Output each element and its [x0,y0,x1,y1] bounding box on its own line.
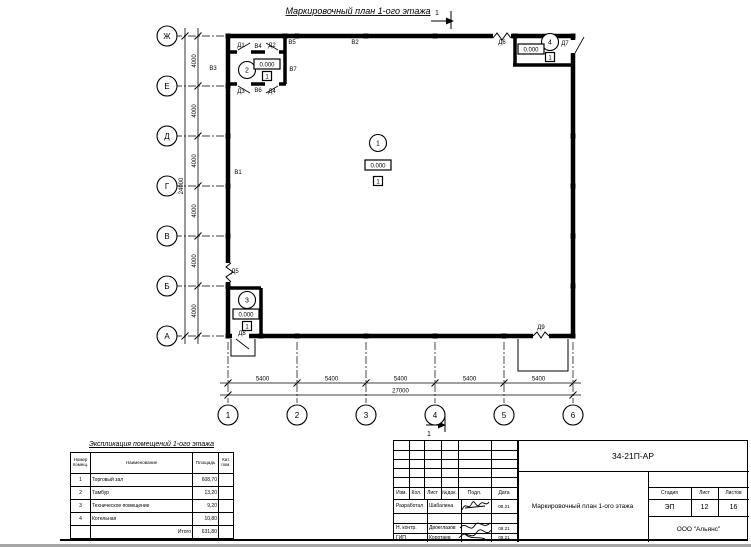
column-marker [259,334,264,339]
explication-title: Экспликация помещений 1-ого этажа [70,441,233,448]
room-name-cell: Котельная [91,513,193,526]
axis-label: Е [164,82,169,91]
table-row: 4Котельная10,80 [71,513,234,526]
table-row: 3Техническое помещение9,20 [71,500,234,513]
building-walls [228,36,573,336]
axis-label: Г [165,182,170,191]
wall-label-В3: В3 [209,66,217,72]
room-number: 4 [548,40,552,47]
axis-label: 1 [226,411,231,420]
total-value-cell: 631,80 [193,526,219,539]
section-mark-top-label: 1 [435,10,439,17]
elevation-value: 0.000 [259,62,275,68]
empty-cell [219,526,234,539]
wall-label-Д8: Д8 [238,331,246,337]
explication-block: Экспликация помещений 1-ого этажа Номер … [70,441,233,539]
dim-value: 5400 [532,377,546,383]
axis-label: 6 [571,411,576,420]
column-marker [571,34,576,39]
sheet-value: 12 [691,499,718,516]
signer-role: Н. контр. [395,523,427,533]
wall-label-Д1: Д1 [237,43,245,49]
dim-value: 4000 [192,54,198,68]
wall-label-Д4: Д4 [268,89,276,95]
axes-bottom: 123456 [218,342,583,425]
room-category-cell [219,474,234,487]
col-izm: Изм. [394,487,409,499]
room-area-cell: 10,80 [193,513,219,526]
column-marker [571,334,576,339]
axis-label: Ж [163,32,171,41]
dim-total: 27000 [392,389,409,395]
stage-value: ЭП [648,499,691,516]
total-label-cell: Итого [91,526,193,539]
col-name: Наименование [91,453,193,474]
room-number-cell: 2 [71,487,91,500]
column-marker [571,284,576,289]
stage-label: Стадия [648,487,691,499]
wall-label-В5: В5 [288,40,296,46]
total-row: Итого631,80 [71,526,234,539]
room-name-cell: Техническое помещение [91,500,193,513]
signer-name: Шабалина [428,499,461,513]
column-marker [364,34,369,39]
table-row: 2Тамбур13,20 [71,487,234,500]
col-kol: Кол. [409,487,424,499]
wall-label-Д5: Д5 [231,269,239,275]
wall-label-В7: В7 [289,67,297,73]
signer-role: Разработал [395,499,427,513]
title-block: Изм. Кол. Лист №док. Подл. Дата Разработ… [393,440,748,541]
sheet-frame-bottom [60,539,748,541]
table-row: 1Торговый зал608,70 [71,474,234,487]
column-marker [283,34,288,39]
dim-total: 24000 [179,177,185,194]
room-area-cell: 13,20 [193,487,219,500]
wall-label-В6: В6 [254,88,262,94]
wall-label-В4: В4 [254,44,262,50]
elevation-value: 0.000 [370,163,386,169]
dim-value: 5400 [463,377,477,383]
column-markers [226,34,576,339]
column-marker [226,34,231,39]
axis-label: 5 [502,411,507,420]
room-category-cell [219,500,234,513]
axis-label: 2 [295,411,300,420]
room-name-cell: Тамбур [91,487,193,500]
column-marker [226,84,231,89]
axis-label: 4 [433,411,438,420]
column-marker [502,334,507,339]
dimension-labels: 5400540054005400540027000400040004000400… [179,54,546,395]
dim-value: 4000 [192,204,198,218]
axis-label: Д [164,132,170,141]
document-number: 34-21П-АР [517,441,749,471]
empty-cell [71,526,91,539]
wall-label-В2: В2 [351,40,359,46]
elevation-value: 0.000 [238,312,254,318]
column-marker [295,34,300,39]
wall-label-Д3: Д3 [237,89,245,95]
room-category-cell [219,487,234,500]
col-list: Лист [424,487,441,499]
sheets-label: Листов [718,487,749,499]
room-marks: 10.000120.000130.000140.0001 [233,34,559,331]
dim-value: 4000 [192,154,198,168]
column-marker [295,334,300,339]
dim-value: 5400 [256,377,270,383]
section-mark-top: 1 [431,10,454,29]
room-number-cell: 1 [71,474,91,487]
column-marker [571,234,576,239]
room-category-cell [219,513,234,526]
col-category: Кат. пом. [219,453,234,474]
drawing-sheet: Маркировочный план 1-ого этажа 1 1 [0,0,751,547]
room-number: 1 [376,141,380,148]
axis-label: В [164,232,169,241]
room-number-cell: 4 [71,513,91,526]
wall-label-Д9: Д9 [537,325,545,331]
column-marker [226,184,231,189]
room-number-cell: 3 [71,500,91,513]
section-arrow-icon [446,18,454,25]
porches [231,339,568,371]
explication-table: Номер помещ. Наименование Площадь Кат. п… [70,452,234,539]
sheets-value: 16 [718,499,749,516]
wall-label-В1: В1 [234,170,242,176]
axis-label: 3 [364,411,369,420]
col-data: Дата [491,487,517,499]
drawing-name: Маркировочный план 1-ого этажа [517,471,648,542]
signature-icon [459,498,491,514]
elevation-value: 0.000 [523,47,539,53]
column-marker [571,184,576,189]
column-marker [571,134,576,139]
dim-value: 4000 [192,104,198,118]
column-marker [433,34,438,39]
axis-label: А [164,332,170,341]
sheet-label: Лист [691,487,718,499]
column-marker [226,234,231,239]
room-number: 3 [245,298,249,305]
plan-title: Маркировочный план 1-ого этажа [285,6,430,16]
col-doc: №док. [441,487,458,499]
dim-value: 4000 [192,254,198,268]
wall-label-Д7: Д7 [561,41,569,47]
column-marker [513,34,518,39]
wall-openings [223,31,584,349]
room-area-cell: 608,70 [193,474,219,487]
wall-label-Д2: Д2 [268,43,276,49]
explication-header-row: Номер помещ. Наименование Площадь Кат. п… [71,453,234,474]
column-marker [433,334,438,339]
dim-value: 5400 [325,377,339,383]
column-marker [226,334,231,339]
column-marker [226,284,231,289]
section-mark-bottom-label: 1 [427,431,431,438]
column-marker [364,334,369,339]
wall-label-Д6: Д6 [498,40,506,46]
col-number: Номер помещ. [71,453,91,474]
room-number: 2 [245,68,249,75]
sign-date: 08.21 [492,523,516,533]
sign-date: 08.21 [492,499,516,513]
dim-value: 4000 [192,304,198,318]
dim-value: 5400 [394,377,408,383]
axes-left: ЖЕДГВБА [157,26,224,346]
room-name-cell: Торговый зал [91,474,193,487]
axis-label: Б [164,282,169,291]
room-area-cell: 9,20 [193,500,219,513]
col-area: Площадь [193,453,219,474]
column-marker [226,134,231,139]
